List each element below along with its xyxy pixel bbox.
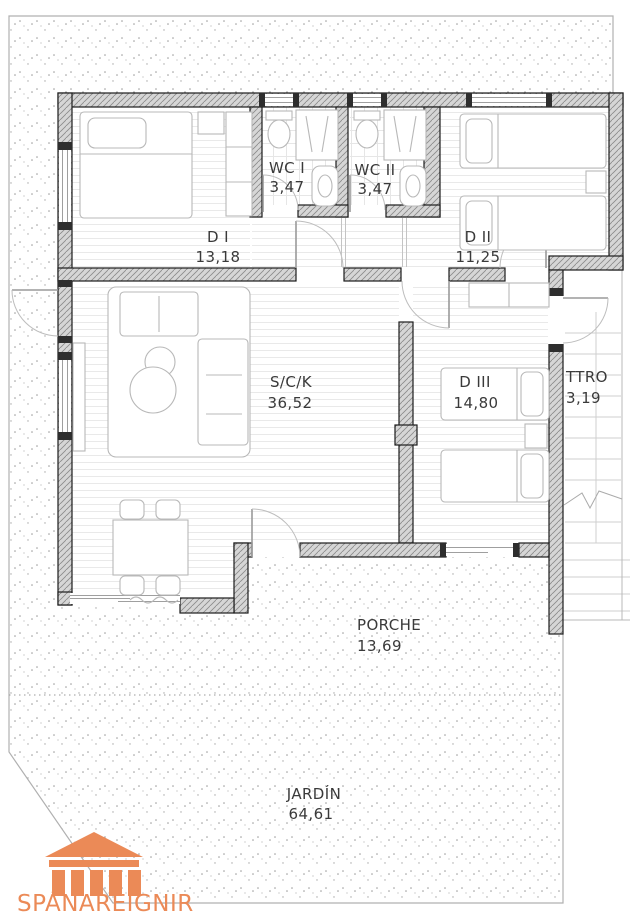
shower-icon [384,110,426,160]
floorplan-drawing: WC I 3,47 WC II 3,47 D I 13,18 D II 11,2… [0,0,631,921]
door-ttro [563,298,608,343]
wall-wc2-bottom-stub [386,205,440,217]
wall-segment [519,543,549,557]
wall-segment [58,592,72,605]
wall-pillar [395,425,417,445]
room-label-porche: PORCHE [357,616,421,634]
hall-floor [252,217,452,268]
nightstand-icon [525,424,547,448]
window-wc2-top [353,94,381,106]
room-area-d3: 14,80 [454,394,499,412]
room-area-d1: 13,18 [196,248,241,266]
door-opening-ttro [548,296,564,344]
garden-top-band [9,16,613,93]
stairs-break-line [564,491,622,508]
chair-icon [120,500,144,519]
room-area-d2: 11,25 [456,248,501,266]
stairs-region [563,270,630,620]
wall-row-mid [344,268,401,281]
toilet-icon [266,111,292,120]
wall-step-vertical [234,543,248,613]
chair-icon [120,576,144,595]
room-label-d3: D III [459,373,491,391]
room-label-wc2: WC II [355,161,396,179]
room-area-ttro: 3,19 [566,389,601,407]
wall-row-left [58,268,296,281]
wall-d2-bottom [549,256,623,270]
toilet-icon [354,111,380,120]
room-area-jardin: 64,61 [289,805,334,823]
wall-d2-right [609,93,623,270]
toilet-icon [268,120,290,148]
window-d2-top [472,94,546,106]
sliding-door-d3-bottom [446,544,519,556]
room-area-wc1: 3,47 [270,178,305,196]
wall-sck-bottom [300,543,446,557]
double-bed-icon [80,112,252,218]
wall-porch-piece [180,598,234,613]
wardrobe-icon [226,112,252,216]
wall-wc1-bottom-stub [298,205,348,217]
room-label-d2: D II [465,228,492,246]
porch-area [248,557,549,605]
wall-row-right [449,268,505,281]
room-label-d1: D I [207,228,229,246]
toilet-icon [356,120,378,148]
garden-bottom-area [58,605,563,903]
room-area-porche: 13,69 [357,637,402,655]
nightstand-icon [586,171,606,193]
room-label-jardin: JARDÍN [286,784,341,803]
shower-icon [296,110,338,160]
window-wc1-top [265,94,293,106]
room-area-sck: 36,52 [268,394,313,412]
brand-logo-text: SPÁNAREIGNIR [17,889,194,917]
floorplan-canvas: WC I 3,47 WC II 3,47 D I 13,18 D II 11,2… [0,0,631,921]
room-label-wc1: WC I [269,159,305,177]
room-label-sck: S/C/K [270,373,313,391]
room-area-wc2: 3,47 [358,180,393,198]
chair-icon [156,576,180,595]
sideboard-icon [73,343,85,451]
room-label-ttro: TTRO [565,368,608,386]
nightstand-icon [198,112,224,134]
chair-icon [156,500,180,519]
window-d1-left [59,150,71,222]
window-sck-left [59,360,71,432]
